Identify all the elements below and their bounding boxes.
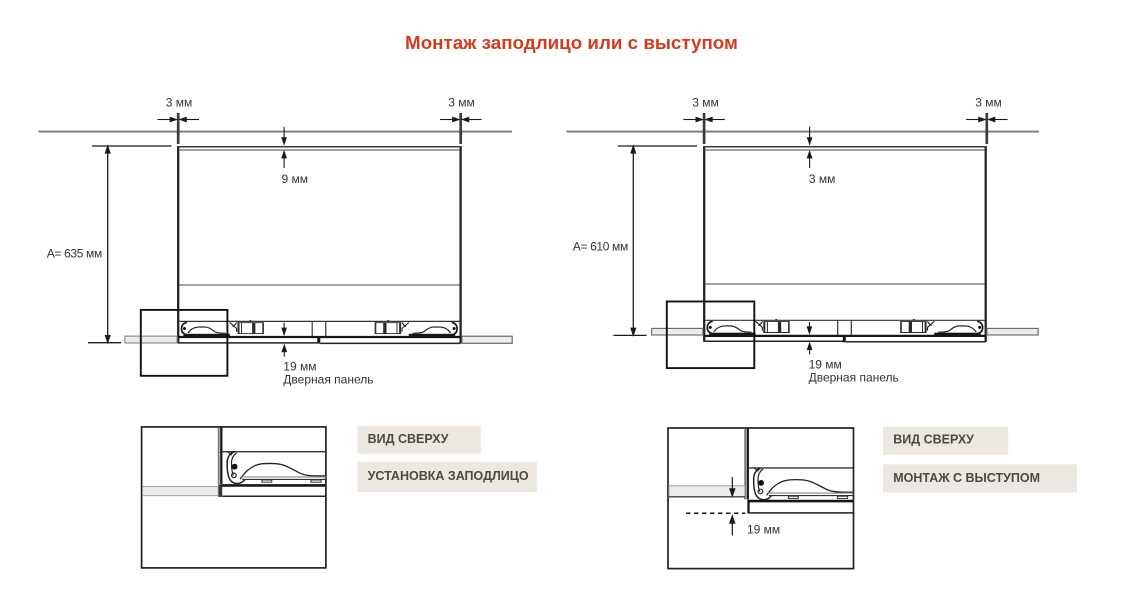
svg-text:ВИД СВЕРХУ: ВИД СВЕРХУ (893, 433, 974, 447)
svg-text:3 мм: 3 мм (975, 96, 1002, 110)
svg-text:A= 610 мм: A= 610 мм (573, 239, 628, 253)
svg-text:Дверная панель: Дверная панель (283, 372, 373, 386)
svg-text:3 мм: 3 мм (692, 96, 719, 110)
svg-text:9 мм: 9 мм (282, 172, 309, 186)
svg-text:Дверная панель: Дверная панель (809, 370, 899, 384)
svg-text:Монтаж заподлицо или с выступо: Монтаж заподлицо или с выступом (405, 32, 738, 53)
svg-text:3 мм: 3 мм (166, 96, 193, 110)
svg-text:A= 635 мм: A= 635 мм (47, 246, 102, 260)
svg-text:УСТАНОВКА ЗАПОДЛИЦО: УСТАНОВКА ЗАПОДЛИЦО (368, 469, 529, 483)
svg-text:ВИД СВЕРХУ: ВИД СВЕРХУ (368, 432, 449, 446)
svg-text:МОНТАЖ С ВЫСТУПОМ: МОНТАЖ С ВЫСТУПОМ (893, 471, 1040, 485)
svg-text:3 мм: 3 мм (448, 96, 475, 110)
svg-text:3 мм: 3 мм (809, 172, 836, 186)
svg-text:19 мм: 19 мм (747, 523, 780, 537)
